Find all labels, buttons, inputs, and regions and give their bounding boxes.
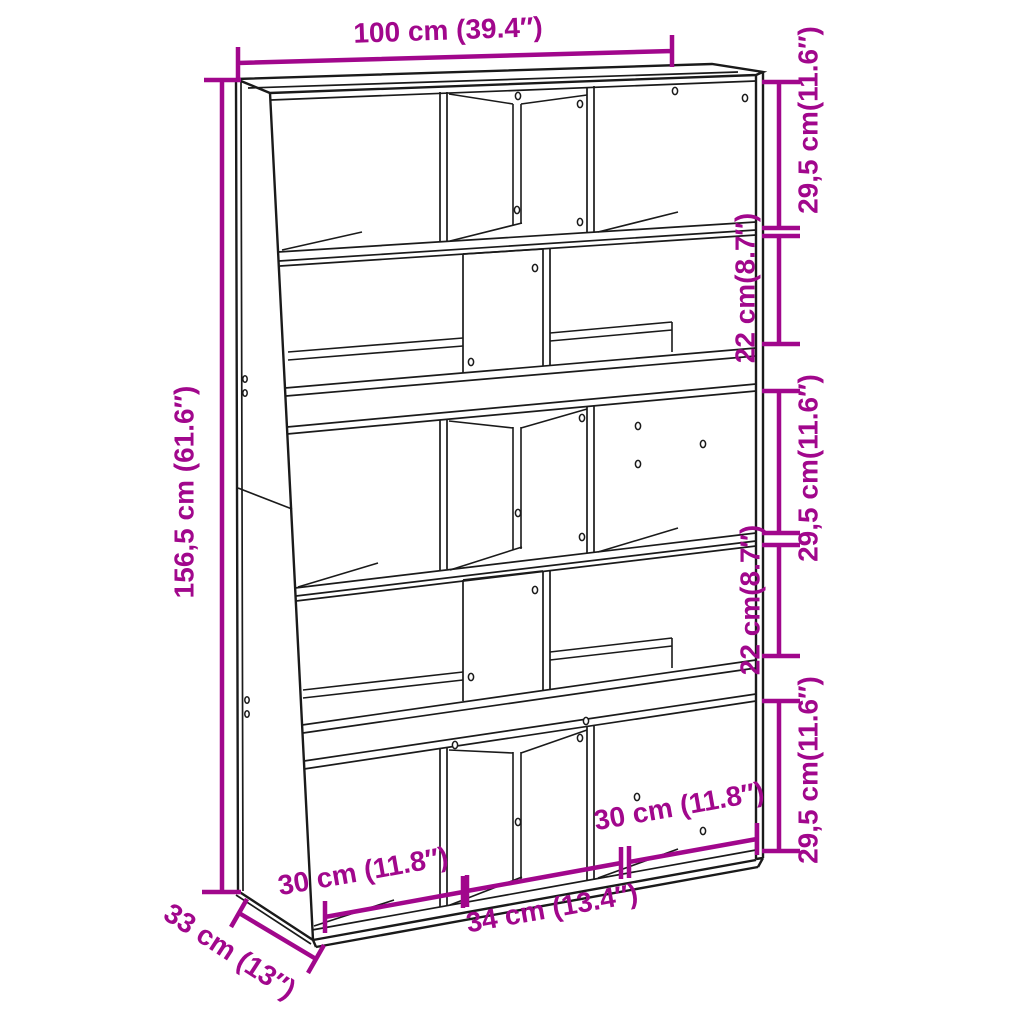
bookcase-dimension-diagram: 100 cm (39.4″) 156,5 cm (61.6″) 29,5 cm(… bbox=[0, 0, 1024, 1024]
dim-right-segment-1: 29,5 cm(11.6″) bbox=[762, 26, 824, 228]
left-panel-inner-edge bbox=[236, 81, 311, 944]
side-panel-seam bbox=[238, 488, 292, 509]
dim-depth-33: 33 cm (13″) bbox=[158, 897, 324, 1005]
dim-bottom-34: 34 cm (13.4″) bbox=[464, 847, 640, 938]
dim-bottom-right-30-label: 30 cm (11.8″) bbox=[592, 776, 767, 836]
top-face bbox=[236, 64, 763, 93]
dim-height-left-label: 156,5 cm (61.6″) bbox=[169, 386, 200, 599]
dim-right-segment-5: 29,5 cm(11.6″) bbox=[762, 676, 824, 864]
dim-right-segment-2-line bbox=[762, 236, 800, 344]
band-rails bbox=[288, 322, 672, 698]
dim-width-top-label: 100 cm (39.4″) bbox=[353, 11, 543, 49]
dim-right-segment-3: 29,5 cm(11.6″) bbox=[762, 374, 824, 562]
open-band-dividers bbox=[463, 248, 550, 701]
dim-right-segment-2-label: 22 cm(8.7″) bbox=[730, 213, 761, 363]
dim-right-segment-4: 22 cm(8.7″) bbox=[735, 525, 801, 675]
dim-height-left: 156,5 cm (61.6″) bbox=[169, 80, 242, 892]
diagram-stage: 100 cm (39.4″) 156,5 cm (61.6″) 29,5 cm(… bbox=[0, 0, 1024, 1024]
dim-depth-33-label: 33 cm (13″) bbox=[158, 897, 301, 1005]
dim-right-segment-5-label: 29,5 cm(11.6″) bbox=[793, 676, 824, 864]
dim-bottom-left-30-label: 30 cm (11.8″) bbox=[276, 841, 451, 901]
dim-right-segment-3-label: 29,5 cm(11.6″) bbox=[793, 374, 824, 562]
dim-right-segment-1-label: 29,5 cm(11.6″) bbox=[793, 26, 824, 214]
dim-right-segment-4-label: 22 cm(8.7″) bbox=[735, 525, 766, 675]
dim-right-segment-2: 22 cm(8.7″) bbox=[730, 213, 801, 363]
